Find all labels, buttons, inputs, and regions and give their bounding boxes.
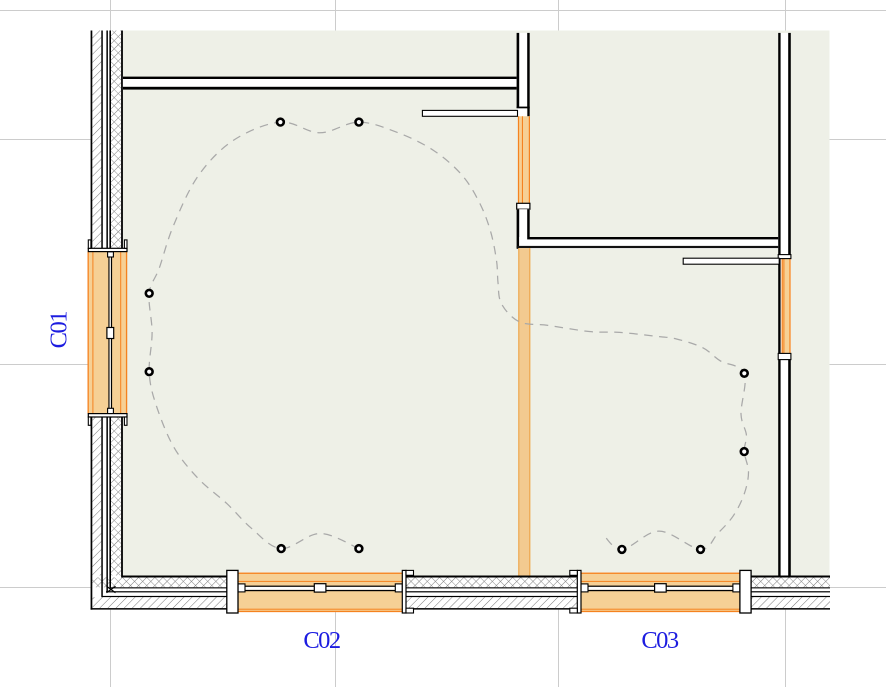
svg-text:C03: C03 (641, 627, 679, 654)
svg-text:C01: C01 (46, 312, 73, 349)
svg-text:C02: C02 (303, 627, 340, 654)
